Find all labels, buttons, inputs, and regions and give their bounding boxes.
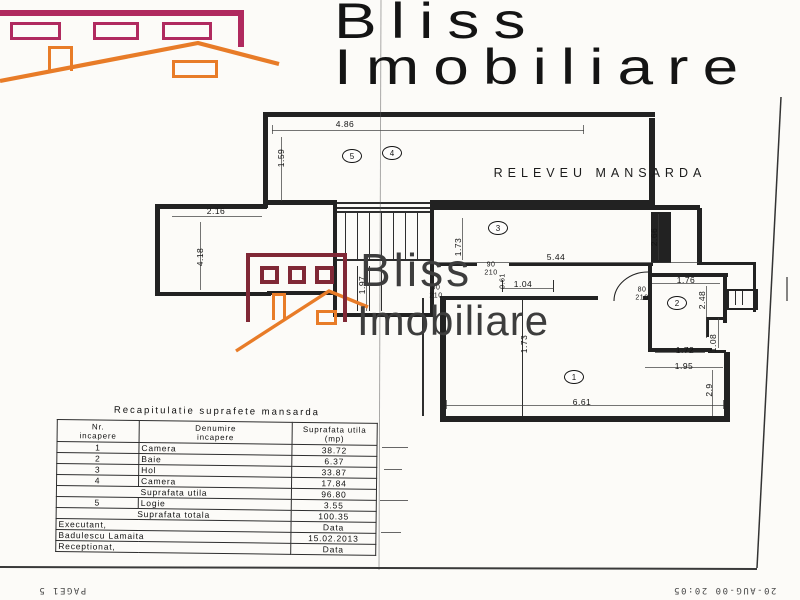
room-number-badge: 5 [342, 149, 362, 163]
logo-window-icon [93, 22, 139, 40]
logo-window-icon [315, 266, 334, 284]
dimension-label: 1.59 [276, 149, 286, 168]
dimension-label: 1.08 [708, 334, 718, 353]
scanned-floor-plan-page: 4.86 1.59 2.16 4.18 1.73 5.44 2.66 1.97 … [0, 0, 800, 600]
cell-value: Data [291, 543, 376, 555]
footer-timestamp: 20-AUG-00 20:05 [652, 585, 797, 595]
dimension-label: 0.61 [500, 273, 507, 289]
table-title: Recapitulatie suprafete mansarda [57, 404, 377, 419]
page-border-right [757, 97, 781, 568]
dimension-label: 2.16 [207, 206, 226, 216]
header-text: incapere [197, 432, 234, 441]
logo-top-bar-end [238, 10, 244, 47]
cell-label: Receptionat, [56, 540, 291, 554]
room-number-badge: 3 [488, 221, 508, 235]
dimension-label: 1.72 [676, 345, 695, 355]
header-text: Suprafata utila [303, 425, 367, 435]
logo-window-icon [172, 60, 218, 78]
door-width: 80 [635, 287, 648, 295]
dimension-label: 1.04 [514, 279, 533, 289]
door-width: 90 [484, 262, 497, 270]
area-recap-section: Recapitulatie suprafete mansarda Nr. inc… [55, 404, 387, 556]
header-text: (mp) [325, 434, 345, 443]
dimension-label: 4.86 [336, 119, 355, 129]
door-size-label: 90 210 [484, 262, 497, 277]
logo-window-icon [316, 310, 337, 325]
dimension-label: 1.95 [675, 361, 694, 371]
brand-line2: Imobiliare [334, 44, 752, 90]
dimension-label: 2.9 [704, 383, 714, 396]
watermark-line1: Bliss [360, 243, 472, 297]
logo-window-icon [260, 266, 279, 284]
dimension-label: 2.48 [697, 291, 707, 310]
header-nr: Nr. incapere [57, 420, 139, 443]
logo-window-icon [10, 22, 61, 40]
header-text: incapere [80, 431, 117, 440]
room-number-badge: 4 [382, 146, 402, 160]
header-text: Nr. [92, 422, 105, 431]
scan-edge-bottom [0, 567, 757, 569]
dimension-label: 1.76 [677, 275, 696, 285]
logo-roof-line [0, 43, 279, 81]
dimension-label: 4.18 [195, 248, 205, 267]
door-size-label: 80 210 [635, 287, 648, 302]
room-number-badge: 1 [564, 370, 584, 384]
dimension-label: 6.61 [573, 397, 592, 407]
footer-page-label: PAGE1 5 [22, 585, 102, 595]
dimension-label: 2.66 [649, 228, 659, 247]
header-suprafata: Suprafata utila (mp) [292, 422, 377, 445]
logo-top-bar [0, 10, 244, 16]
brand-title: Bliss Imobiliare [334, 0, 752, 90]
logo-chimney-icon [272, 293, 286, 320]
header-denumire: Denumire incapere [139, 421, 292, 445]
door-height: 210 [635, 294, 648, 302]
room-number-badge: 2 [667, 296, 687, 310]
brand-line1: Bliss [334, 0, 752, 44]
door-height: 210 [484, 269, 497, 277]
watermark-line2: Imobiliare [357, 297, 549, 345]
dimension-label: 5.44 [547, 252, 566, 262]
logo-window-icon [162, 22, 212, 40]
logo-chimney-icon [48, 46, 73, 71]
logo-window-icon [288, 266, 306, 284]
plan-title: RELEVEU MANSARDA [494, 166, 707, 180]
area-recap-table: Nr. incapere Denumire incapere Suprafata… [55, 419, 378, 556]
